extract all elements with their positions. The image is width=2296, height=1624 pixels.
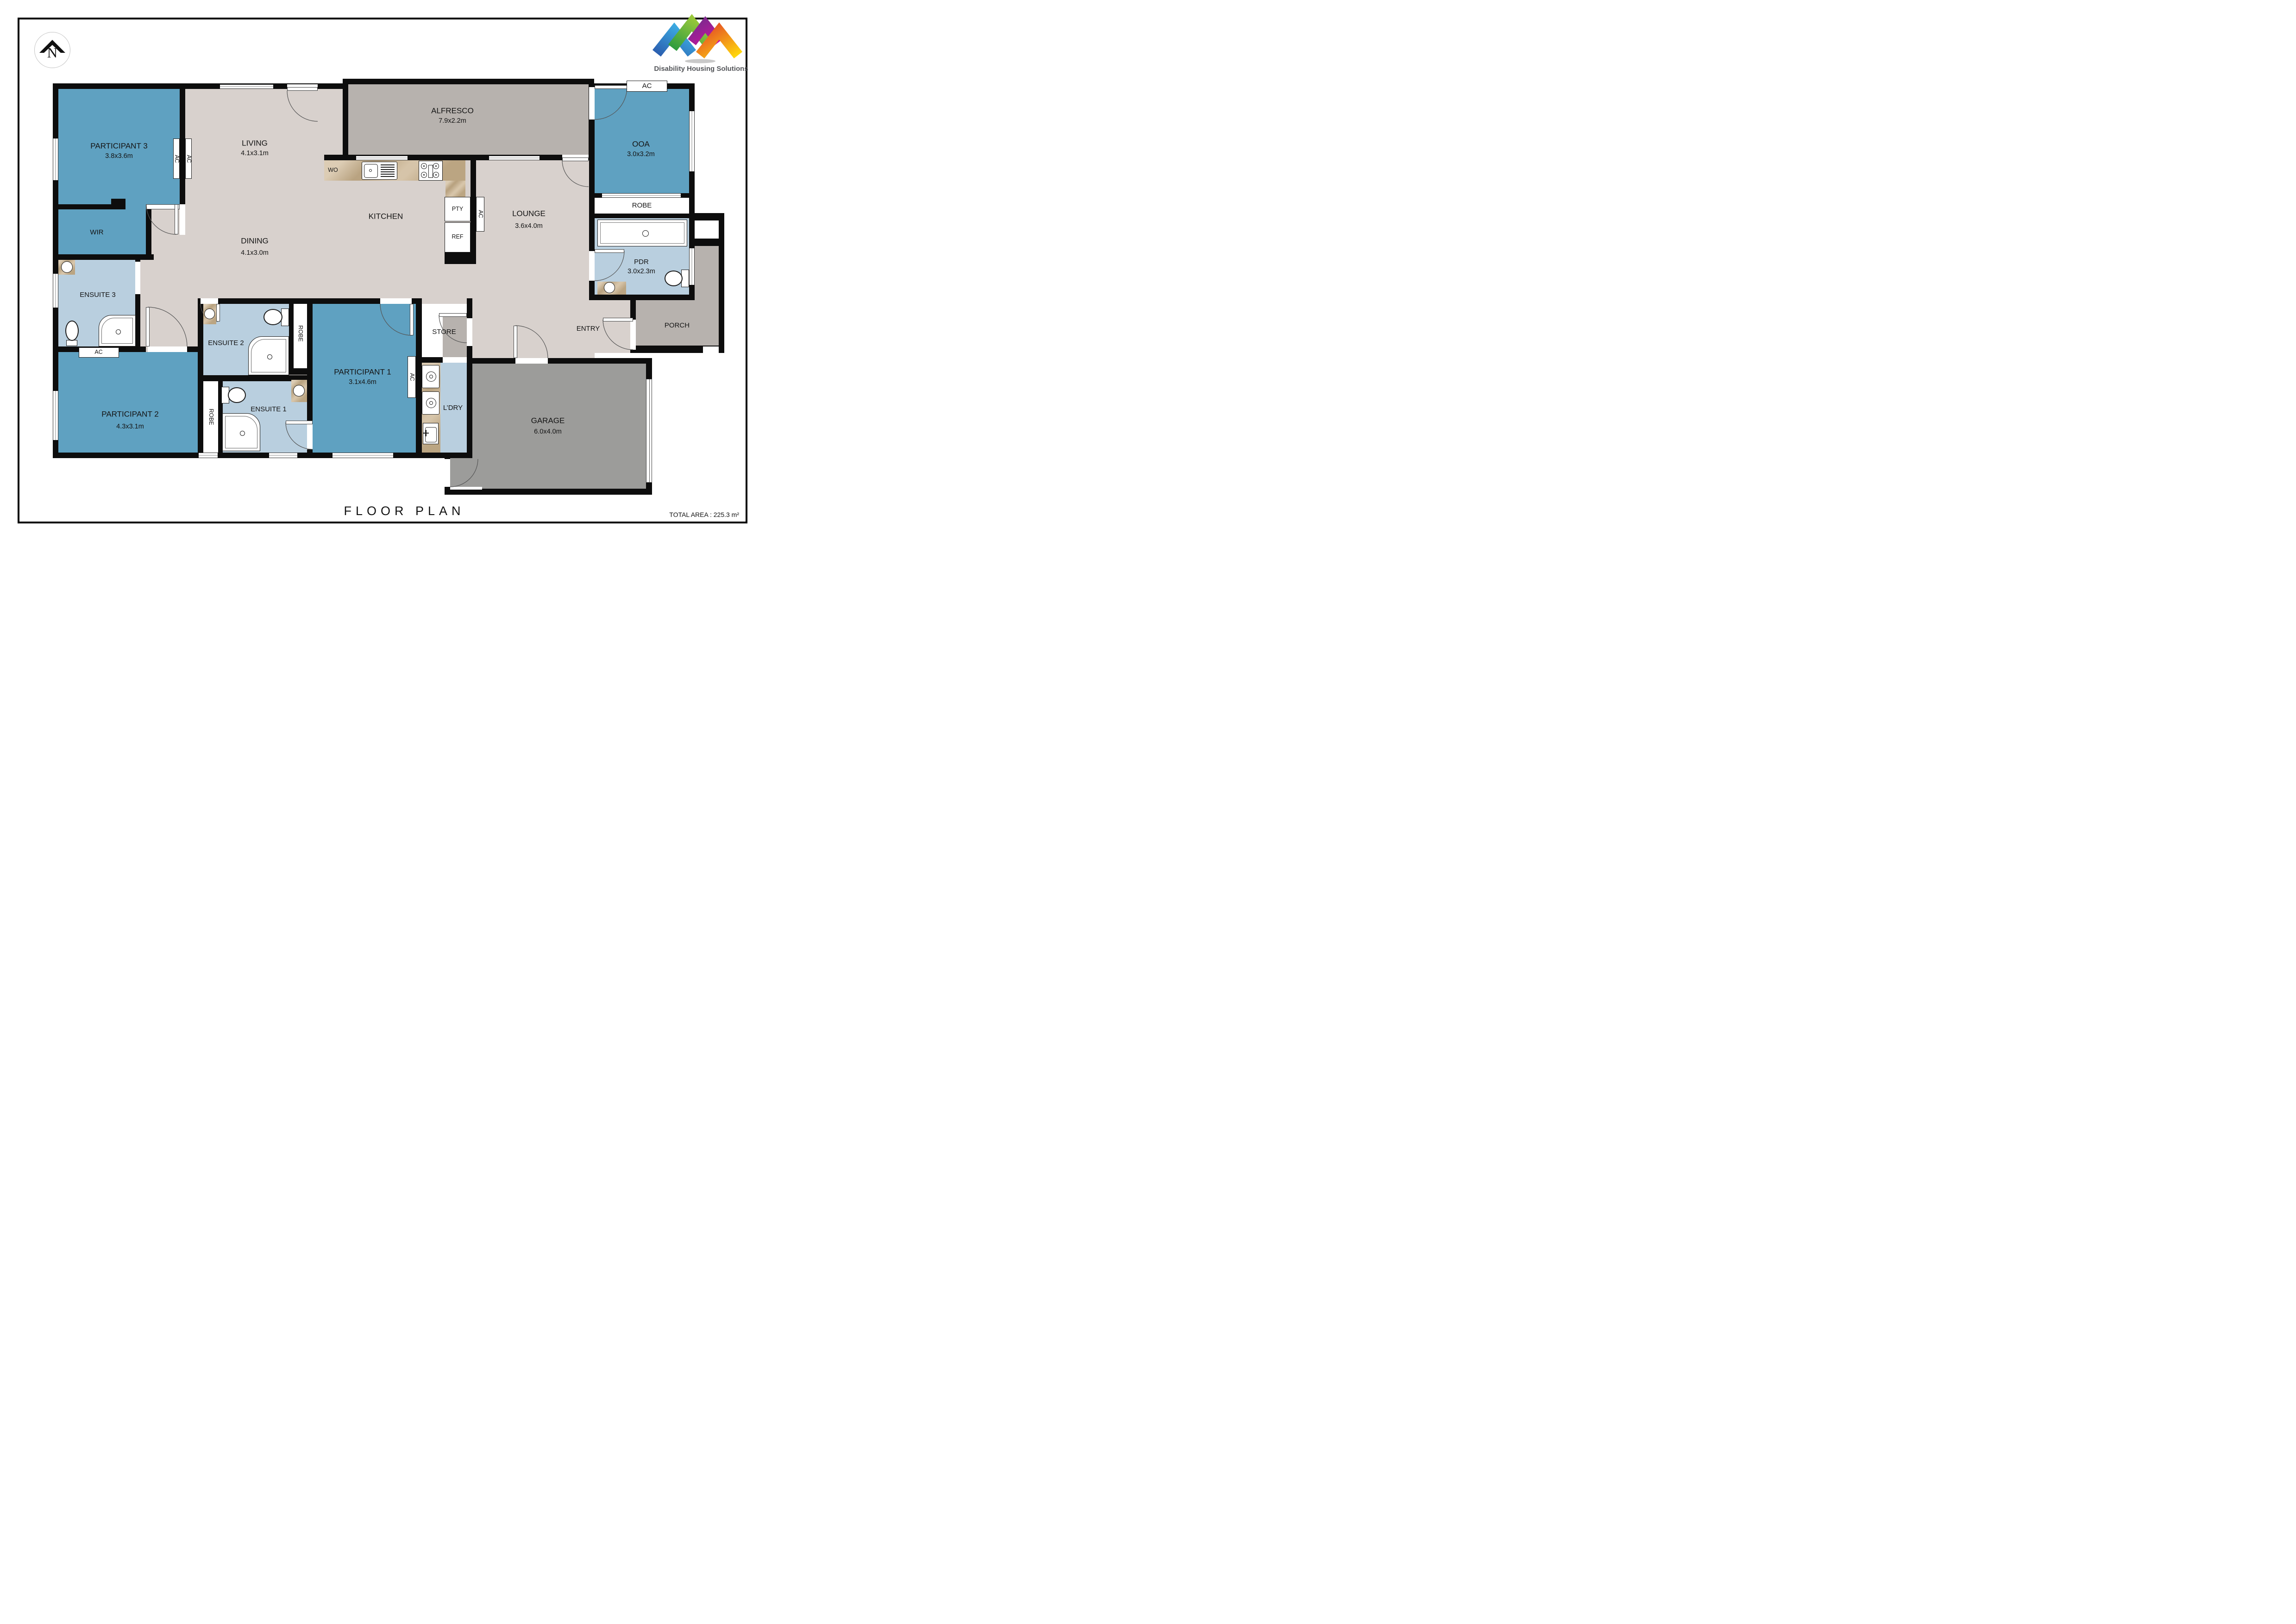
room-label: LOUNGE xyxy=(512,210,546,219)
shower xyxy=(222,413,260,451)
door-leaf xyxy=(175,204,178,234)
room-dims: 4.1x3.1m xyxy=(241,150,269,157)
room-dims: 3.1x4.6m xyxy=(349,379,376,386)
wall xyxy=(467,358,652,364)
door-opening xyxy=(307,422,313,449)
door-opening xyxy=(380,298,412,304)
ac-label: AC xyxy=(94,349,102,356)
room-label: KITCHEN xyxy=(369,213,403,221)
wall xyxy=(695,239,719,246)
window xyxy=(53,391,58,440)
room-label: GARAGE xyxy=(531,417,565,426)
door-leaf xyxy=(146,307,150,346)
cooktop xyxy=(419,161,443,181)
window xyxy=(269,453,297,458)
room-label: PARTICIPANT 1 xyxy=(334,368,391,377)
door-leaf xyxy=(287,87,318,91)
door-leaf xyxy=(595,249,624,253)
robe-label: ROBE xyxy=(297,325,303,341)
room-label: ENSUITE 1 xyxy=(251,406,287,414)
room-label: LIVING xyxy=(242,139,268,148)
vanity-counter xyxy=(597,220,687,246)
window xyxy=(199,453,218,458)
door-opening xyxy=(180,204,185,235)
room-label: DINING xyxy=(241,237,269,246)
wall xyxy=(589,295,693,300)
ensuite3-opening xyxy=(135,262,140,294)
garage-corner-ext xyxy=(450,458,471,489)
toilet xyxy=(221,386,246,404)
north-label: N xyxy=(35,44,70,61)
room-label: ALFRESCO xyxy=(431,107,474,116)
wall xyxy=(146,209,151,254)
door-opening xyxy=(630,320,636,350)
basin xyxy=(204,308,215,319)
room-label: L’DRY xyxy=(443,404,463,412)
floor-plan-page: { "colors": { "floor": "#d8d1cd", "bedro… xyxy=(0,0,765,541)
room-dims: 3.8x3.6m xyxy=(105,153,133,160)
porch-step xyxy=(703,346,719,358)
shower xyxy=(99,315,136,346)
plan-title: FLOOR PLAN xyxy=(273,504,535,518)
door-leaf xyxy=(603,318,633,321)
room-label: ENSUITE 3 xyxy=(80,291,116,299)
wall xyxy=(719,213,724,353)
ac-label: AC xyxy=(173,155,180,163)
wall xyxy=(53,453,472,458)
toilet xyxy=(263,308,290,327)
wall xyxy=(198,298,203,458)
wall xyxy=(53,254,154,260)
robe-label: ROBE xyxy=(632,202,652,210)
room-alfresco xyxy=(348,84,589,155)
door-leaf xyxy=(562,157,589,161)
company-logo: Disability Housing Solutions xyxy=(652,17,750,75)
wall xyxy=(416,298,422,458)
garage-door xyxy=(646,379,652,483)
shower xyxy=(248,336,289,375)
laundry-tub xyxy=(423,423,439,444)
room-label: PARTICIPANT 3 xyxy=(90,142,147,151)
window xyxy=(53,274,58,308)
dryer xyxy=(422,391,439,415)
wall xyxy=(343,79,348,160)
ac-label: AC xyxy=(642,82,652,90)
room-label: PARTICIPANT 2 xyxy=(101,410,158,419)
robe-label: ROBE xyxy=(207,409,214,425)
door-opening xyxy=(467,318,472,346)
door-leaf xyxy=(216,304,220,321)
room-garage xyxy=(471,364,646,489)
wall xyxy=(53,204,125,209)
window xyxy=(489,156,539,160)
basin xyxy=(293,385,305,397)
window xyxy=(602,193,681,198)
room-dims: 3.6x4.0m xyxy=(515,223,543,230)
door-opening xyxy=(445,459,450,487)
room-label: ENTRY xyxy=(577,325,600,333)
company-name: Disability Housing Solutions xyxy=(652,65,750,73)
door-opening xyxy=(201,298,218,304)
kitchen-bench-return xyxy=(445,181,465,197)
room-dims: 3.0x3.2m xyxy=(627,151,655,158)
wall xyxy=(111,199,125,204)
room-dims: 4.1x3.0m xyxy=(241,250,269,257)
room-dims: 6.0x4.0m xyxy=(534,428,562,436)
toilet xyxy=(665,269,689,288)
room-label: PDR xyxy=(634,258,649,266)
room-dims: 7.9x2.2m xyxy=(439,118,466,125)
door-leaf xyxy=(439,313,467,317)
wo-label: WO xyxy=(328,167,338,174)
porch-niche xyxy=(695,220,719,239)
wall xyxy=(140,346,146,352)
pantry-label: PTY xyxy=(452,206,463,213)
room-label: OOA xyxy=(632,140,650,149)
room-porch-side xyxy=(695,246,719,300)
total-area: TOTAL AREA : 225.3 m² xyxy=(639,511,739,518)
wall xyxy=(343,79,594,84)
room-dims: 4.3x3.1m xyxy=(116,423,144,431)
basin xyxy=(61,261,73,273)
wir-opening xyxy=(125,204,146,209)
door-opening xyxy=(515,358,548,364)
ac-label: AC xyxy=(185,155,192,163)
room-label: STORE xyxy=(432,328,456,336)
door-opening xyxy=(443,357,467,363)
compass: N xyxy=(34,32,70,68)
door-leaf xyxy=(286,421,313,424)
door-leaf xyxy=(410,304,414,335)
washing-machine xyxy=(422,365,439,388)
room-label: PORCH xyxy=(665,322,690,330)
wall xyxy=(467,358,472,458)
wall xyxy=(595,214,689,218)
window xyxy=(53,138,58,180)
window xyxy=(332,453,393,458)
kitchen-sink xyxy=(362,162,397,180)
fridge-label: REF xyxy=(452,234,464,240)
window xyxy=(689,248,695,285)
logo-mountains-icon xyxy=(652,17,750,65)
door-opening xyxy=(589,87,595,120)
door-opening xyxy=(148,346,187,352)
ac-label: AC xyxy=(477,210,483,218)
door-leaf xyxy=(595,85,627,89)
toilet xyxy=(65,321,79,346)
window xyxy=(356,156,408,160)
door-leaf xyxy=(514,326,517,358)
threshold xyxy=(450,487,482,490)
window xyxy=(220,84,273,89)
ac-label: AC xyxy=(408,373,415,381)
wall xyxy=(289,368,309,375)
window xyxy=(689,111,695,171)
wall xyxy=(470,160,476,264)
door-opening xyxy=(589,251,595,281)
basin xyxy=(604,282,615,293)
room-participant2 xyxy=(58,352,198,453)
room-label: WIR xyxy=(90,229,103,237)
wall xyxy=(445,252,476,264)
room-dims: 3.0x2.3m xyxy=(627,268,655,276)
room-label: ENSUITE 2 xyxy=(208,340,244,347)
wall xyxy=(187,346,198,352)
